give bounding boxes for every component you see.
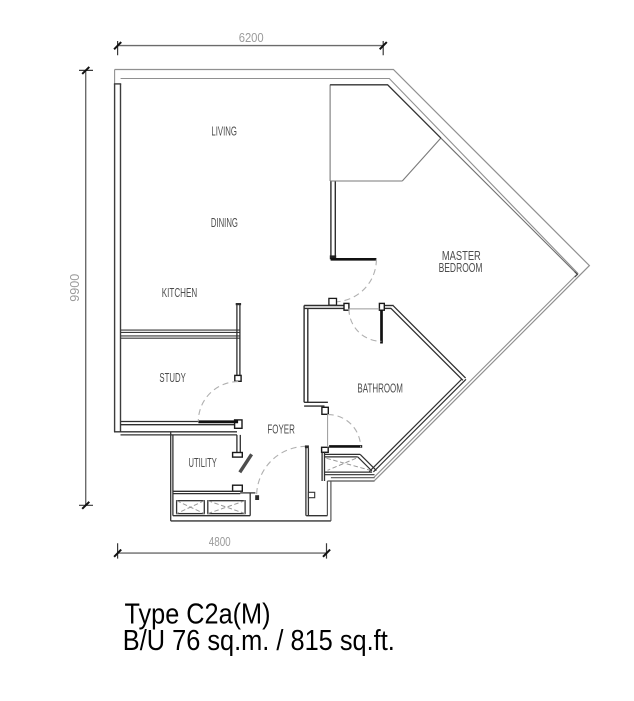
svg-text:DINING: DINING: [211, 215, 238, 230]
svg-text:FOYER: FOYER: [267, 422, 295, 437]
svg-text:LIVING: LIVING: [211, 124, 237, 139]
svg-text:B/U 76 sq.m. / 815 sq.ft.: B/U 76 sq.m. / 815 sq.ft.: [123, 625, 395, 657]
svg-text:9900: 9900: [68, 274, 82, 302]
svg-text:4800: 4800: [209, 535, 231, 549]
svg-text:6200: 6200: [239, 31, 264, 45]
svg-text:UTILITY: UTILITY: [189, 455, 217, 470]
svg-text:STUDY: STUDY: [159, 370, 186, 385]
svg-text:KITCHEN: KITCHEN: [162, 285, 197, 300]
svg-text:BEDROOM: BEDROOM: [439, 260, 483, 275]
svg-text:BATHROOM: BATHROOM: [357, 381, 403, 396]
